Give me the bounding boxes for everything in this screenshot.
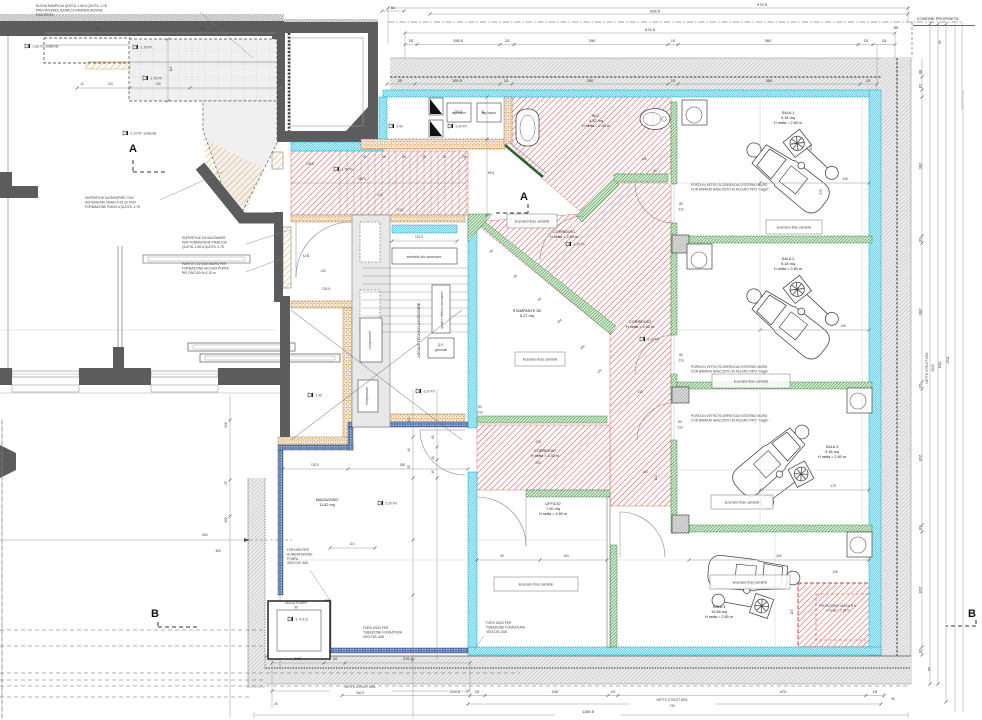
svg-text:FORI Ø50 PER: FORI Ø50 PER: [287, 548, 310, 552]
svg-text:210: 210: [678, 208, 684, 212]
svg-text:553: 553: [202, 533, 208, 537]
svg-text:249: 249: [552, 689, 559, 694]
svg-text:80: 80: [478, 405, 482, 409]
svg-text:739: 739: [669, 704, 675, 708]
svg-text:360: 360: [765, 38, 772, 43]
svg-text:1040: 1040: [931, 364, 935, 371]
svg-text:979.5: 979.5: [757, 2, 768, 7]
svg-text:9.18 mq: 9.18 mq: [781, 116, 795, 120]
svg-text:lucernario fisso carrabile: lucernario fisso carrabile: [519, 583, 554, 587]
svg-text:340: 340: [776, 554, 782, 558]
svg-text:154: 154: [563, 554, 569, 558]
svg-text:10: 10: [671, 78, 676, 83]
svg-text:15: 15: [505, 38, 510, 43]
svg-text:298: 298: [224, 422, 228, 428]
svg-text:H netta = 2.80 m: H netta = 2.80 m: [774, 121, 802, 125]
svg-text:365: 365: [215, 549, 221, 553]
svg-text:H netta = 2.80 m: H netta = 2.80 m: [539, 512, 567, 516]
svg-text:B: B: [968, 608, 976, 620]
svg-text:CON BINARIO NASCOSTO IN ACCIAI: CON BINARIO NASCOSTO IN ACCIAIO TIPO "ma…: [691, 369, 769, 373]
svg-text:10: 10: [671, 38, 676, 43]
svg-text:NETTO STRUTTURA: NETTO STRUTTURA: [925, 352, 929, 384]
svg-text:PORTA IN VETRO SCORREVOLE ESTE: PORTA IN VETRO SCORREVOLE ESTERNO MURO: [691, 414, 768, 418]
svg-text:360: 360: [766, 78, 773, 83]
svg-text:50: 50: [391, 5, 396, 10]
svg-text:TUBAZIONE FOGNATURA: TUBAZIONE FOGNATURA: [486, 625, 526, 629]
svg-text:NUOVA RAMPA DA QUOTA -1.66 A Q: NUOVA RAMPA DA QUOTA -1.66 A QUOTA -1.78…: [36, 4, 107, 8]
svg-text:55: 55: [927, 667, 932, 672]
svg-text:210: 210: [677, 426, 683, 430]
svg-text:188: 188: [399, 463, 405, 467]
svg-text:4.32 mq: 4.32 mq: [589, 119, 603, 123]
svg-text:SISTEMA AIR CRAB H=25 cm PER: SISTEMA AIR CRAB H=25 cm PER: [85, 201, 136, 205]
svg-text:VEDI DIS. A08: VEDI DIS. A08: [363, 635, 384, 639]
svg-text:REI FINO AD H=2.20 m: REI FINO AD H=2.20 m: [182, 271, 216, 275]
svg-text:H netta = 2.80 m: H netta = 2.80 m: [705, 615, 733, 619]
svg-text:20: 20: [409, 38, 414, 43]
svg-text:-1.95: -1.95: [315, 394, 322, 398]
svg-text:A: A: [520, 191, 528, 203]
svg-text:130: 130: [637, 390, 643, 394]
svg-text:TUBAZIONE FOGNATURA: TUBAZIONE FOGNATURA: [363, 630, 403, 634]
svg-text:PORTA IN VETRO SCORREVOLE ESTE: PORTA IN VETRO SCORREVOLE ESTERNO MURO: [691, 365, 768, 369]
svg-text:219.5: 219.5: [454, 110, 462, 114]
svg-text:ALIMENTAZIONE: ALIMENTAZIONE: [287, 552, 312, 556]
svg-text:230: 230: [397, 208, 403, 212]
svg-text:H netta = 2.40 m: H netta = 2.40 m: [582, 124, 610, 128]
svg-text:1150: 1150: [938, 361, 942, 368]
svg-text:1189.5: 1189.5: [582, 709, 595, 714]
svg-text:LOCALE TECNICO ASCENSORE: LOCALE TECNICO ASCENSORE: [417, 302, 421, 357]
svg-text:133: 133: [107, 82, 113, 86]
svg-text:263: 263: [199, 27, 205, 31]
svg-text:15: 15: [431, 470, 435, 474]
svg-text:lucernario fisso carrabile: lucernario fisso carrabile: [515, 220, 550, 224]
svg-text:145: 145: [840, 324, 846, 328]
svg-text:-2.90: -2.90: [396, 125, 403, 129]
svg-text:UFFICIO: UFFICIO: [545, 502, 560, 506]
svg-text:10.56 mq: 10.56 mq: [711, 610, 727, 614]
svg-text:28: 28: [462, 155, 466, 159]
svg-text:50: 50: [653, 169, 657, 173]
svg-text:90: 90: [294, 605, 298, 609]
svg-text:lucernario fisso carrabile: lucernario fisso carrabile: [777, 226, 812, 230]
svg-text:290: 290: [589, 38, 596, 43]
svg-text:210: 210: [678, 359, 684, 363]
svg-text:15: 15: [504, 78, 509, 83]
svg-text:CON BINARIO NASCOSTO IN ACCIAI: CON BINARIO NASCOSTO IN ACCIAIO TIPO "ma…: [691, 187, 769, 191]
svg-text:59.5: 59.5: [488, 171, 494, 175]
svg-text:370: 370: [819, 189, 823, 195]
svg-text:compressore: compressore: [368, 331, 372, 350]
svg-text:215: 215: [918, 455, 923, 462]
svg-text:SUPERFICIE DA SAGOMARE: SUPERFICIE DA SAGOMARE: [182, 236, 226, 240]
svg-text:15: 15: [918, 84, 923, 89]
svg-text:H netta = 2.60 m: H netta = 2.60 m: [550, 235, 578, 239]
svg-text:20: 20: [398, 78, 403, 83]
svg-text:U.S.: U.S.: [303, 254, 310, 258]
svg-text:15: 15: [864, 38, 869, 43]
svg-text:90: 90: [500, 554, 504, 558]
svg-text:470: 470: [780, 689, 787, 694]
svg-text:STAMPANTE 3D: STAMPANTE 3D: [513, 309, 542, 313]
svg-text:PARETE DA SAGOMARE PER: PARETE DA SAGOMARE PER: [182, 262, 227, 266]
svg-text:20: 20: [333, 656, 338, 661]
svg-text:6.27 mq: 6.27 mq: [520, 314, 534, 318]
svg-text:-1.78 P.F.: -1.78 P.F.: [150, 77, 163, 81]
svg-text:159.5: 159.5: [453, 38, 464, 43]
svg-text:15: 15: [873, 689, 878, 694]
svg-text:15: 15: [918, 649, 923, 654]
svg-text:-3.20 P.F.: -3.20 P.F.: [385, 502, 398, 506]
svg-text:112: 112: [169, 66, 173, 71]
svg-text:80: 80: [678, 420, 682, 424]
svg-text:150: 150: [809, 145, 813, 151]
svg-text:PER FORMAZIONE PIANO DA: PER FORMAZIONE PIANO DA: [182, 241, 228, 245]
svg-text:9.18 mq: 9.18 mq: [781, 262, 795, 266]
svg-text:25: 25: [224, 481, 228, 485]
svg-text:lucernario fisso carrabile: lucernario fisso carrabile: [725, 501, 760, 505]
svg-text:55: 55: [891, 697, 895, 701]
svg-text:lucernario fisso carrabile: lucernario fisso carrabile: [733, 581, 768, 585]
svg-text:28: 28: [362, 155, 366, 159]
svg-text:215.5: 215.5: [403, 656, 414, 661]
svg-text:lucernario fisso carrabile: lucernario fisso carrabile: [523, 358, 558, 362]
svg-text:-3.20 P.F.: -3.20 P.F.: [573, 243, 586, 247]
svg-text:FORO Ø120 PER: FORO Ø120 PER: [486, 621, 512, 625]
svg-text:SALA 1: SALA 1: [782, 111, 795, 115]
svg-text:110: 110: [95, 27, 100, 31]
svg-text:-3.20 P.F.: -3.20 P.F.: [455, 125, 468, 129]
svg-text:259: 259: [535, 461, 541, 465]
svg-text:FORMAZIONE PIANO A QUOTA -1.78: FORMAZIONE PIANO A QUOTA -1.78: [85, 205, 140, 209]
svg-text:20: 20: [274, 702, 278, 706]
svg-text:-3.20 P.F.: -3.20 P.F.: [647, 338, 660, 342]
svg-text:110: 110: [349, 542, 354, 546]
svg-text:874.5: 874.5: [645, 27, 656, 32]
svg-text:132.5: 132.5: [311, 463, 319, 467]
svg-text:100: 100: [295, 656, 302, 661]
svg-text:121.5: 121.5: [415, 235, 423, 239]
svg-text:VEDI DIS. A08: VEDI DIS. A08: [486, 630, 507, 634]
svg-text:215.5: 215.5: [450, 689, 461, 694]
svg-text:Q.E.: Q.E.: [438, 343, 444, 347]
svg-text:-2.13 P.F. esistente: -2.13 P.F. esistente: [130, 132, 157, 136]
svg-text:15: 15: [475, 689, 480, 694]
svg-text:W.C.: W.C.: [592, 114, 600, 118]
svg-text:159.5: 159.5: [452, 78, 463, 83]
svg-text:239: 239: [535, 440, 541, 444]
svg-text:SUPERFICIE DA RIEMPIRE CON: SUPERFICIE DA RIEMPIRE CON: [85, 196, 134, 200]
svg-text:340.5: 340.5: [356, 691, 364, 695]
svg-text:10: 10: [918, 238, 923, 243]
svg-text:-1.78 P.F.: -1.78 P.F.: [341, 168, 354, 172]
svg-text:-3.20 P.F.: -3.20 P.F.: [423, 390, 436, 394]
svg-text:928.5: 928.5: [650, 9, 661, 14]
svg-text:135: 135: [832, 570, 838, 574]
svg-text:81: 81: [938, 40, 942, 44]
svg-text:quadro elettrico ascensore: quadro elettrico ascensore: [440, 291, 444, 329]
svg-text:125.5: 125.5: [322, 287, 330, 291]
svg-text:-1.66 P.F. esistente: -1.66 P.F. esistente: [32, 45, 59, 49]
svg-text:140: 140: [320, 269, 326, 273]
svg-text:55: 55: [894, 25, 899, 30]
svg-text:A: A: [129, 143, 137, 155]
svg-text:130: 130: [155, 82, 161, 86]
svg-text:100: 100: [642, 470, 648, 474]
svg-text:175: 175: [830, 484, 836, 488]
svg-text:290: 290: [587, 78, 594, 83]
svg-text:128.8: 128.8: [306, 162, 314, 166]
svg-text:QUOTA -1.66 A QUOTA -1.78: QUOTA -1.66 A QUOTA -1.78: [182, 245, 224, 249]
svg-text:CORRIDOIO: CORRIDOIO: [553, 230, 575, 234]
svg-text:28: 28: [442, 155, 446, 159]
svg-text:H netta = 2.35 m: H netta = 2.35 m: [826, 608, 850, 612]
svg-text:H netta = 2.40 m: H netta = 2.40 m: [531, 454, 559, 458]
svg-text:11.82 mq: 11.82 mq: [319, 503, 335, 507]
svg-text:B: B: [151, 608, 159, 620]
svg-text:412: 412: [377, 193, 383, 197]
svg-text:VEDI DIS. A08: VEDI DIS. A08: [287, 561, 308, 565]
svg-text:352.5: 352.5: [358, 177, 366, 181]
svg-text:CON BINARIO NASCOSTO IN ACCIAI: CON BINARIO NASCOSTO IN ACCIAIO TIPO "ma…: [691, 418, 769, 422]
svg-text:250: 250: [918, 163, 923, 170]
svg-text:60: 60: [431, 435, 435, 439]
svg-text:55: 55: [918, 70, 923, 75]
svg-text:40: 40: [431, 456, 435, 460]
svg-text:110: 110: [654, 475, 658, 480]
svg-text:CORRIDOIO: CORRIDOIO: [534, 449, 556, 453]
svg-text:250: 250: [918, 309, 923, 316]
svg-text:10: 10: [611, 689, 616, 694]
svg-text:VASCA POMPE: VASCA POMPE: [285, 601, 308, 605]
svg-text:15: 15: [882, 38, 887, 43]
svg-text:PROIEZIONE VASCA B.S.: PROIEZIONE VASCA B.S.: [819, 604, 857, 608]
svg-text:H netta = 2.40 m: H netta = 2.40 m: [626, 325, 654, 329]
svg-text:215: 215: [918, 587, 923, 594]
svg-text:80: 80: [679, 353, 683, 357]
svg-text:serbatoio olio ascensore: serbatoio olio ascensore: [407, 255, 442, 259]
svg-text:12: 12: [80, 82, 84, 86]
svg-text:145: 145: [842, 177, 848, 181]
svg-text:-1.78 P.F.: -1.78 P.F.: [140, 46, 153, 50]
svg-text:110: 110: [407, 417, 411, 422]
svg-text:15: 15: [407, 465, 411, 469]
svg-text:10: 10: [918, 384, 923, 389]
svg-text:FORMAZIONE NICCHIA PORTA: FORMAZIONE NICCHIA PORTA: [182, 267, 230, 271]
svg-text:28: 28: [402, 155, 406, 159]
svg-text:PREVIA DEMOLIZIONE DI PAVIMENT: PREVIA DEMOLIZIONE DI PAVIMENTAZIONE: [36, 9, 103, 13]
svg-text:MAGAZZINO: MAGAZZINO: [316, 498, 339, 502]
svg-text:SALA 4: SALA 4: [713, 605, 726, 609]
svg-text:80: 80: [679, 202, 683, 206]
svg-text:166: 166: [641, 157, 647, 161]
svg-text:-3.70 E.S.: -3.70 E.S.: [295, 618, 309, 622]
svg-text:FORO Ø120 PER: FORO Ø120 PER: [363, 626, 389, 630]
svg-text:40: 40: [407, 448, 411, 452]
svg-text:15: 15: [918, 526, 923, 531]
svg-text:9.18 mq: 9.18 mq: [825, 450, 839, 454]
svg-text:ESISTENTE: ESISTENTE: [36, 13, 54, 17]
svg-text:100: 100: [224, 517, 228, 523]
svg-text:H netta = 2.80 m: H netta = 2.80 m: [774, 267, 802, 271]
svg-text:compressore: compressore: [365, 387, 369, 406]
svg-text:1211: 1211: [946, 356, 950, 363]
svg-text:210: 210: [477, 411, 483, 415]
svg-text:CORRIDOIO: CORRIDOIO: [629, 320, 651, 324]
svg-text:PORTA IN VETRO SCORREVOLE ESTE: PORTA IN VETRO SCORREVOLE ESTERNO MURO: [691, 183, 768, 187]
svg-text:15: 15: [481, 110, 485, 114]
svg-text:H netta = 2.80 m: H netta = 2.80 m: [818, 455, 846, 459]
svg-text:SALA 3: SALA 3: [826, 445, 839, 449]
svg-text:SALA 2: SALA 2: [782, 257, 795, 261]
svg-text:NETTO STRUTTURA: NETTO STRUTTURA: [657, 698, 689, 702]
svg-text:115: 115: [790, 609, 794, 614]
svg-text:NETTO STRUTTURA: NETTO STRUTTURA: [345, 685, 377, 689]
svg-text:15: 15: [866, 78, 871, 83]
svg-text:generale: generale: [435, 348, 448, 352]
svg-text:28: 28: [422, 155, 426, 159]
svg-text:7.00 mq: 7.00 mq: [546, 507, 560, 511]
svg-text:28: 28: [382, 155, 386, 159]
svg-text:CONFINE PROPRIETA': CONFINE PROPRIETA': [917, 16, 960, 21]
svg-text:lucernario fisso carrabile: lucernario fisso carrabile: [734, 380, 769, 384]
